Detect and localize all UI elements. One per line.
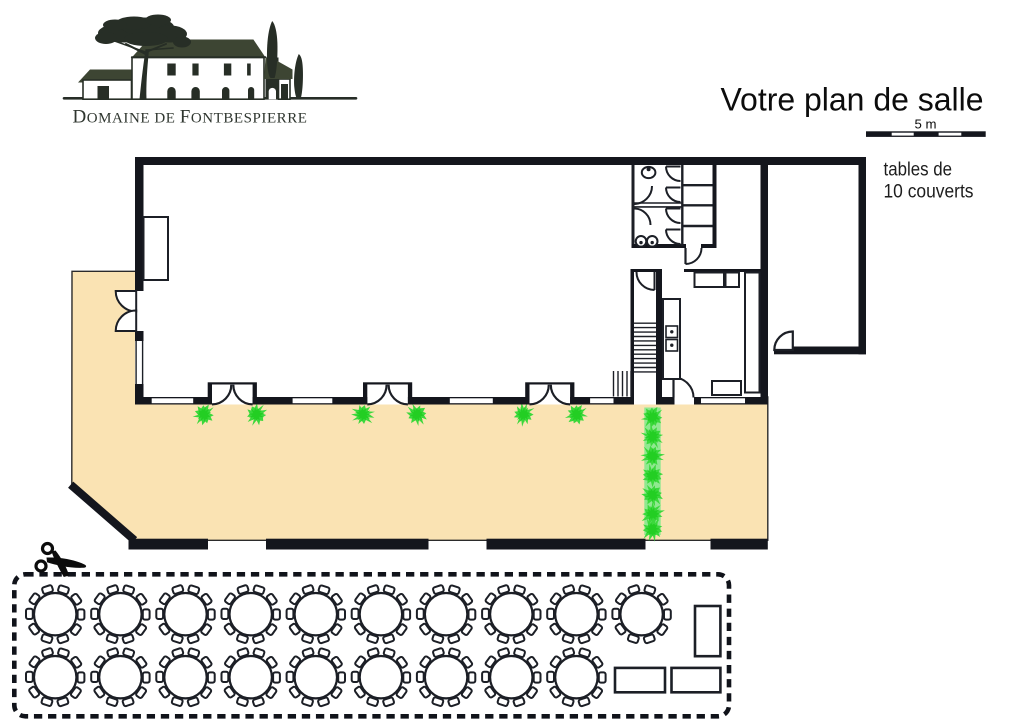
svg-text:5 m: 5 m [915,117,937,132]
svg-text:tables de: tables de [884,160,953,181]
svg-text:10 couverts: 10 couverts [884,182,974,203]
svg-text:DOMAINE DE FONTBESPIERRE: DOMAINE DE FONTBESPIERRE [72,106,307,127]
svg-text:Votre plan de salle: Votre plan de salle [721,82,984,118]
